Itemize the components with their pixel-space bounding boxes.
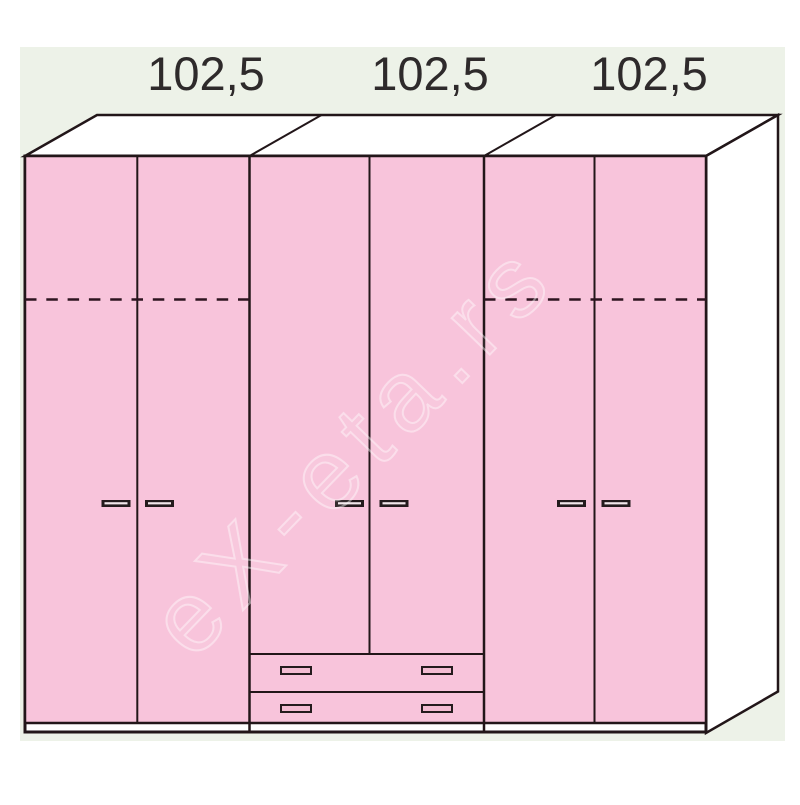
svg-text:102,5: 102,5 (147, 47, 265, 100)
svg-text:102,5: 102,5 (590, 47, 708, 100)
svg-text:102,5: 102,5 (371, 47, 489, 100)
